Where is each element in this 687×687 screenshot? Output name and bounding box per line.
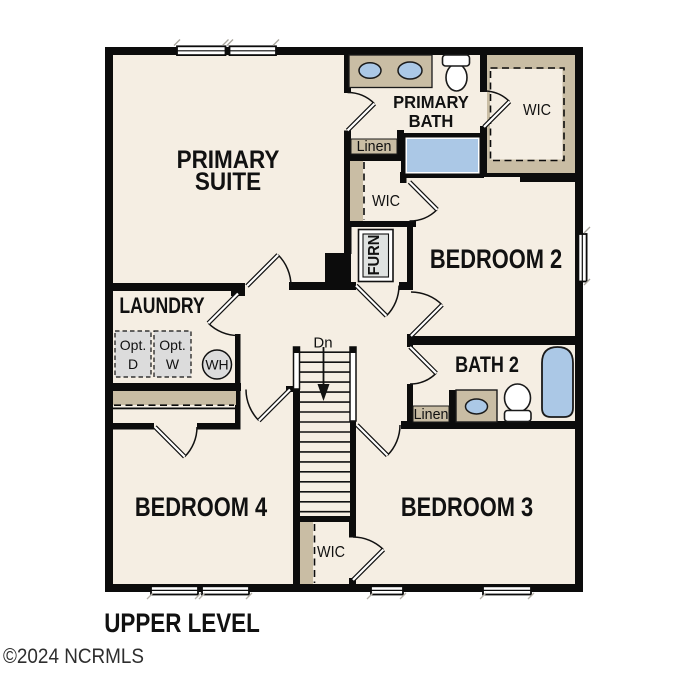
svg-text:BATH: BATH xyxy=(409,110,454,131)
svg-text:Dn: Dn xyxy=(313,335,332,352)
svg-text:D: D xyxy=(128,356,138,372)
svg-text:FURN: FURN xyxy=(366,235,384,276)
svg-text:BEDROOM 2: BEDROOM 2 xyxy=(430,245,562,275)
svg-text:BATH 2: BATH 2 xyxy=(455,353,519,377)
svg-text:LAUNDRY: LAUNDRY xyxy=(119,294,204,318)
svg-text:BEDROOM 3: BEDROOM 3 xyxy=(401,493,533,523)
svg-text:WIC: WIC xyxy=(372,192,400,210)
svg-text:WIC: WIC xyxy=(523,101,551,119)
svg-text:WH: WH xyxy=(205,357,228,373)
svg-text:©2024 NCRMLS: ©2024 NCRMLS xyxy=(3,645,144,668)
svg-text:Linen: Linen xyxy=(414,407,449,423)
svg-text:PRIMARY: PRIMARY xyxy=(393,91,469,112)
svg-text:WIC: WIC xyxy=(317,543,345,561)
svg-text:Linen: Linen xyxy=(357,139,392,155)
svg-text:BEDROOM 4: BEDROOM 4 xyxy=(135,493,268,523)
svg-text:SUITE: SUITE xyxy=(195,168,261,196)
svg-text:Opt.: Opt. xyxy=(159,337,185,353)
svg-text:UPPER LEVEL: UPPER LEVEL xyxy=(104,609,260,638)
svg-text:W: W xyxy=(166,356,180,372)
svg-text:Opt.: Opt. xyxy=(120,337,146,353)
